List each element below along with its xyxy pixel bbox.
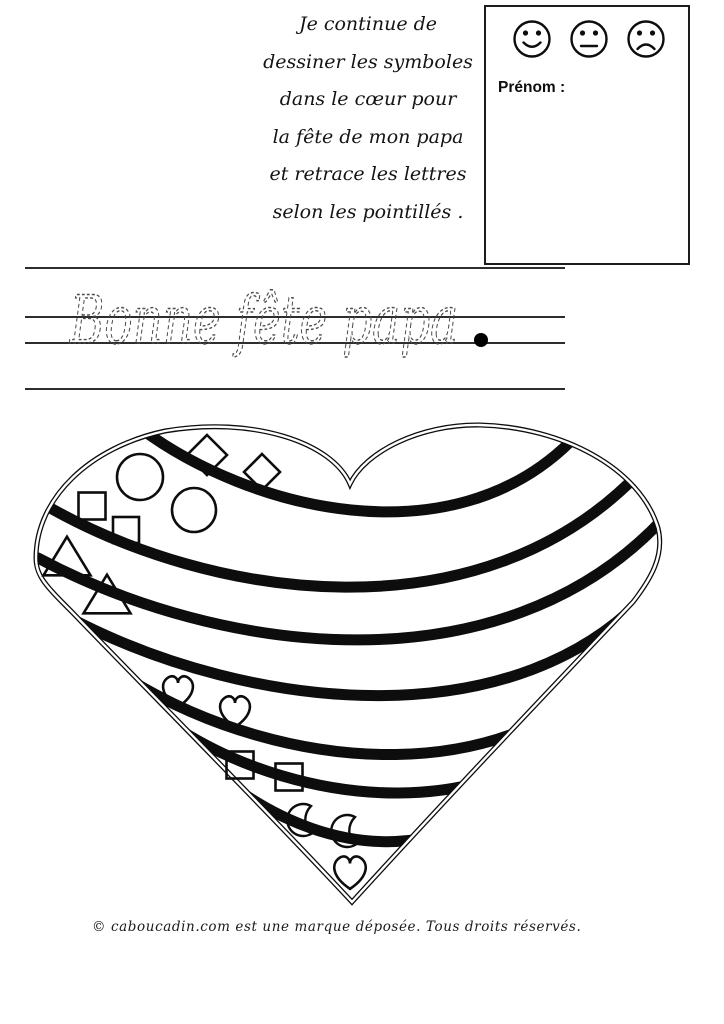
heart-stripe [45, 472, 640, 587]
heart-picture [0, 0, 724, 1024]
shape-square [79, 493, 106, 520]
heart-stripe [140, 428, 570, 512]
heart-stripe [38, 520, 662, 640]
shape-heart [334, 856, 365, 888]
worksheet-page: { "instructions": { "lines": [ "Je conti… [0, 0, 724, 1024]
shape-circle [117, 454, 163, 500]
footer-text: © caboucadin.com est une marque déposée.… [92, 919, 652, 935]
heart-stripes [38, 428, 662, 842]
shape-circle [172, 488, 216, 532]
